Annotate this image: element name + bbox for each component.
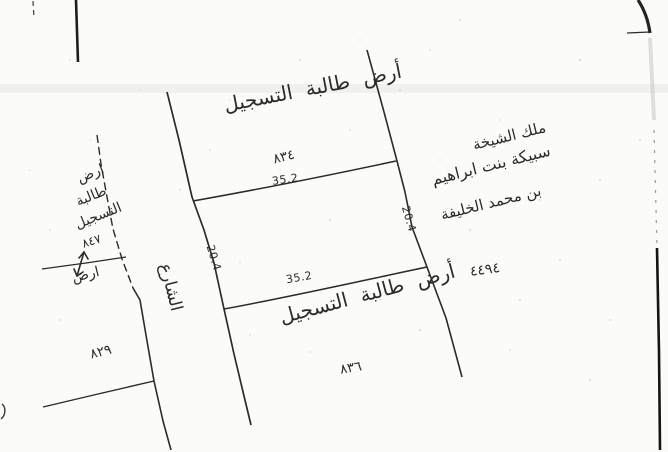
west-divider-lower — [43, 381, 154, 407]
scanned-survey-sketch: أرض طالبة التسجيل ٨٣٤ 35.2 20.4 20.4 35.… — [0, 0, 668, 452]
right-edge-line — [657, 248, 660, 450]
road-west-boundary — [133, 288, 171, 450]
tick-mark-top-left — [33, 1, 34, 18]
corner-fold-mark — [638, 0, 650, 33]
scan-smudge — [650, 38, 654, 120]
right-edge-faint-line — [654, 130, 657, 248]
corner-tick — [627, 32, 650, 33]
vertical-line-top-left — [76, 0, 78, 62]
left-edge-hook — [1, 404, 5, 419]
